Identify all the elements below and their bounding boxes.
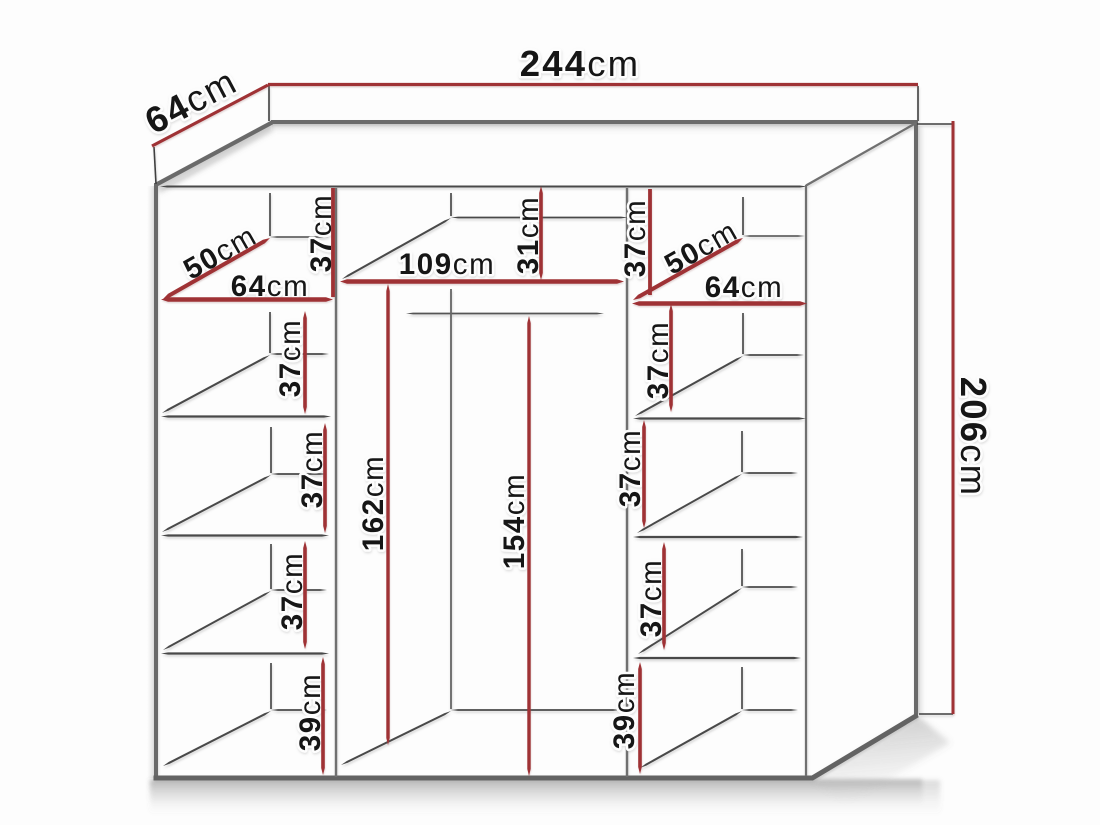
svg-text:64cm: 64cm xyxy=(705,271,784,304)
svg-text:64cm: 64cm xyxy=(138,60,244,142)
svg-text:37cm: 37cm xyxy=(619,199,652,278)
svg-text:154cm: 154cm xyxy=(498,473,531,570)
svg-text:162cm: 162cm xyxy=(357,455,390,552)
svg-text:39cm: 39cm xyxy=(608,671,641,750)
svg-text:37cm: 37cm xyxy=(614,429,647,508)
svg-text:109cm: 109cm xyxy=(399,248,496,281)
svg-text:244cm: 244cm xyxy=(520,43,641,84)
svg-text:206cm: 206cm xyxy=(953,377,994,498)
svg-text:37cm: 37cm xyxy=(274,319,307,398)
